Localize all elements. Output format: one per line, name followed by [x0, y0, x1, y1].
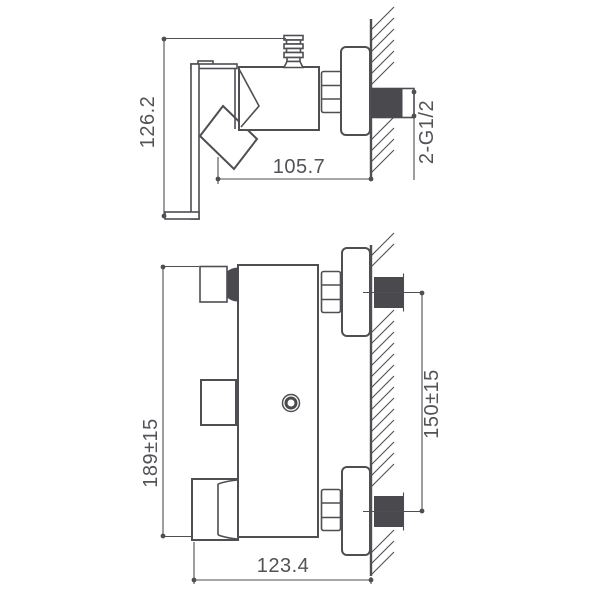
- dimension-inlet-spacing: 150±15: [420, 291, 443, 514]
- technical-drawing-canvas: 126.2 105.7 2-G1/2: [0, 0, 600, 600]
- hex-nut-bottom-front: [322, 490, 341, 531]
- screw-detail: [283, 395, 300, 412]
- wall-hatch-top-upper: [371, 7, 394, 85]
- dimension-height-front: 189±15: [140, 265, 199, 539]
- hose-nipple: [284, 36, 303, 68]
- inlet-spacing-dim-label: 150±15: [421, 369, 443, 439]
- thread-dim-label: 2-G1/2: [416, 100, 438, 164]
- wall-hatch-bottom-lower: [371, 530, 394, 575]
- front-view-drawing: 189±15 150±15 123.4: [140, 233, 443, 584]
- height-dim-label-front: 189±15: [140, 418, 162, 488]
- wall-hatch-bottom-middle: [371, 310, 394, 487]
- hex-nut-side: [322, 72, 342, 113]
- width-dim-label: 123.4: [257, 555, 310, 577]
- top-outlet-housing: [200, 267, 227, 303]
- wall-escutcheon-side: [341, 47, 370, 135]
- wall-hatch-bottom-upper: [371, 233, 394, 267]
- side-view-drawing: 126.2 105.7 2-G1/2: [137, 7, 438, 219]
- mixer-body-front: [238, 265, 318, 537]
- hex-nut-top-front: [322, 272, 341, 313]
- depth-dim-label: 105.7: [273, 156, 326, 178]
- height-dim-label-side: 126.2: [137, 96, 159, 149]
- handle-front: [201, 380, 236, 425]
- drawing-svg: 126.2 105.7 2-G1/2: [0, 0, 600, 600]
- wall-hatch-top-lower: [371, 117, 394, 173]
- bottom-outlet-housing: [192, 479, 238, 540]
- mixer-body-side: [239, 67, 319, 130]
- dimension-thread: 2-G1/2: [412, 89, 438, 180]
- handle-foot: [165, 212, 199, 219]
- handle-bar: [191, 64, 199, 219]
- inlet-pipe-side: [371, 88, 414, 118]
